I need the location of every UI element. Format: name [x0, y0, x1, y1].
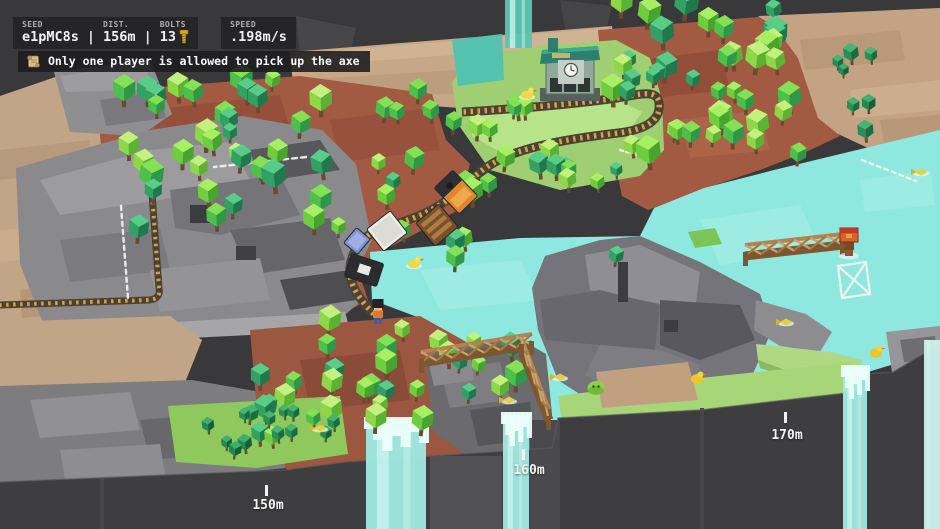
bolts-value: 13: [160, 29, 176, 45]
speed-panel: SPEED .198m/s: [221, 17, 296, 49]
distance-tick: [522, 449, 525, 460]
scroll-icon: [26, 55, 41, 68]
seed-label: SEED: [22, 20, 79, 29]
game-scene: [0, 0, 940, 529]
speed-value: .198m/s: [230, 29, 287, 45]
waterfall-right-edge: [924, 340, 940, 529]
speed-label: SPEED: [230, 20, 287, 29]
bolts-stat: BOLTS 13: [160, 20, 189, 45]
stats-panel: SEED e1pMC8s | DIST. 156m | BOLTS 13: [13, 17, 198, 49]
game-viewport[interactable]: SEED e1pMC8s | DIST. 156m | BOLTS 13 SPE…: [0, 0, 940, 529]
waterfall-top: [505, 0, 532, 48]
waterfall-bottom-right: [841, 365, 870, 529]
distance-marker: 160m: [513, 463, 544, 478]
speed-stat: SPEED .198m/s: [230, 20, 287, 45]
bolts-label: BOLTS: [160, 20, 189, 29]
distance-marker: 150m: [252, 498, 283, 513]
distance-tick: [265, 485, 268, 496]
separator: |: [144, 29, 152, 45]
dist-value: 156m: [103, 29, 136, 45]
pond-top: [452, 34, 504, 86]
seed-value: e1pMC8s: [22, 29, 79, 45]
distance-marker: 170m: [771, 428, 802, 443]
distance-tick: [784, 412, 787, 423]
separator: |: [87, 29, 95, 45]
seed-stat: SEED e1pMC8s: [22, 20, 79, 45]
bolt-icon: [179, 30, 189, 44]
dist-stat: DIST. 156m: [103, 20, 136, 45]
message-text: Only one player is allowed to pick up th…: [48, 54, 360, 68]
message-bar: Only one player is allowed to pick up th…: [18, 51, 370, 72]
slime: [588, 381, 605, 395]
dist-label: DIST.: [103, 20, 136, 29]
